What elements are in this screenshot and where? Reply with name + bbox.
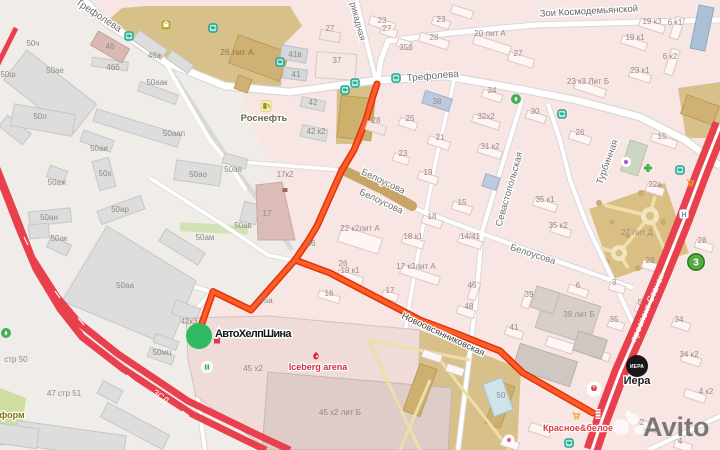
- svg-text:6 к2: 6 к2: [663, 52, 678, 61]
- svg-text:50л: 50л: [33, 112, 47, 121]
- svg-text:34 к2: 34 к2: [679, 350, 699, 359]
- svg-text:28: 28: [430, 33, 439, 42]
- svg-text:47 стр 51: 47 стр 51: [47, 389, 82, 398]
- svg-text:36: 36: [307, 239, 316, 248]
- svg-text:22 к2лит А: 22 к2лит А: [340, 224, 380, 233]
- svg-text:50аак: 50аак: [146, 78, 168, 87]
- svg-text:48: 48: [465, 302, 474, 311]
- svg-text:5: 5: [638, 298, 643, 307]
- svg-text:21: 21: [436, 133, 445, 142]
- svg-text:Н: Н: [681, 212, 686, 219]
- svg-text:50ав: 50ав: [234, 221, 252, 230]
- svg-text:3: 3: [612, 278, 617, 287]
- svg-text:39: 39: [525, 290, 534, 299]
- svg-text:50ая: 50ая: [224, 165, 242, 174]
- svg-text:23 к3 Лит Б: 23 к3 Лит Б: [567, 77, 609, 86]
- svg-text:42 к2: 42 к2: [306, 127, 326, 136]
- svg-text:17к2: 17к2: [277, 170, 294, 179]
- svg-text:45 х2: 45 х2: [243, 364, 263, 373]
- svg-text:27: 27: [514, 49, 523, 58]
- svg-text:27 лит Д: 27 лит Д: [621, 228, 653, 237]
- svg-text:50ш: 50ш: [0, 70, 15, 79]
- svg-text:18: 18: [428, 212, 437, 221]
- svg-text:26 лит А: 26 лит А: [220, 47, 254, 57]
- svg-text:46: 46: [468, 281, 477, 290]
- svg-text:Iceberg arena: Iceberg arena: [289, 362, 349, 372]
- svg-text:45 х2 лит Б: 45 х2 лит Б: [319, 408, 361, 417]
- svg-text:46б: 46б: [106, 63, 120, 72]
- svg-text:46: 46: [106, 42, 115, 51]
- svg-text:32х2: 32х2: [477, 112, 495, 121]
- svg-text:50аа: 50аа: [116, 281, 134, 290]
- svg-text:16: 16: [325, 289, 334, 298]
- svg-text:Avito: Avito: [643, 412, 710, 442]
- svg-text:АвтоХелпШина: АвтоХелпШина: [215, 328, 292, 340]
- svg-text:19 к1: 19 к1: [625, 33, 645, 42]
- svg-text:35 к1: 35 к1: [535, 195, 555, 204]
- svg-text:50ч: 50ч: [26, 39, 39, 48]
- svg-text:31 к2: 31 к2: [480, 142, 500, 151]
- svg-text:27: 27: [326, 24, 335, 33]
- svg-text:50ак: 50ак: [51, 234, 68, 243]
- svg-text:35б: 35б: [399, 43, 413, 52]
- svg-text:41в: 41в: [288, 50, 301, 59]
- svg-text:17: 17: [386, 286, 395, 295]
- svg-text:14/41: 14/41: [460, 232, 481, 241]
- svg-text:6 к1: 6 к1: [668, 18, 683, 27]
- svg-text:46ж: 46ж: [148, 51, 163, 60]
- svg-text:форм: форм: [0, 410, 25, 420]
- svg-text:25: 25: [406, 114, 415, 123]
- svg-text:15: 15: [658, 132, 667, 141]
- svg-text:3: 3: [693, 258, 699, 269]
- svg-text:50х: 50х: [99, 169, 112, 178]
- svg-text:41: 41: [292, 70, 301, 79]
- svg-text:50ам: 50ам: [196, 233, 215, 242]
- svg-text:41: 41: [510, 323, 519, 332]
- svg-text:34: 34: [488, 86, 497, 95]
- svg-text:28: 28: [698, 236, 707, 245]
- svg-text:27: 27: [383, 24, 392, 33]
- svg-text:23: 23: [399, 149, 408, 158]
- svg-text:50аж: 50аж: [48, 178, 67, 187]
- svg-text:19: 19: [424, 168, 433, 177]
- svg-text:28: 28: [372, 116, 381, 125]
- svg-text:23: 23: [437, 15, 446, 24]
- svg-text:4 к2: 4 к2: [699, 387, 714, 396]
- svg-text:19 к3: 19 к3: [642, 17, 662, 26]
- svg-text:50мц: 50мц: [153, 348, 172, 357]
- svg-text:50ае: 50ае: [46, 66, 64, 75]
- svg-text:35: 35: [610, 315, 619, 324]
- svg-text:39 лит Б: 39 лит Б: [563, 310, 594, 319]
- svg-text:Красное&белое: Красное&белое: [543, 423, 613, 433]
- svg-text:50ан: 50ан: [40, 213, 58, 222]
- svg-text:50ао: 50ао: [189, 170, 207, 179]
- svg-text:45а: 45а: [259, 296, 273, 305]
- svg-text:37: 37: [333, 56, 342, 65]
- svg-text:26: 26: [339, 259, 348, 268]
- svg-text:20 лит А: 20 лит А: [474, 29, 506, 38]
- svg-text:38: 38: [433, 97, 442, 106]
- svg-text:15: 15: [458, 198, 467, 207]
- svg-text:22а: 22а: [648, 180, 662, 189]
- svg-text:50аи: 50аи: [90, 144, 108, 153]
- svg-text:17: 17: [263, 209, 272, 218]
- svg-text:Роснефть: Роснефть: [241, 113, 288, 124]
- svg-text:17 к3лит А: 17 к3лит А: [396, 262, 436, 271]
- svg-text:18 к1: 18 к1: [403, 232, 423, 241]
- svg-text:ИЕРА: ИЕРА: [630, 364, 644, 370]
- svg-text:29: 29: [646, 256, 655, 265]
- svg-text:стр 50: стр 50: [4, 355, 28, 364]
- svg-text:50: 50: [497, 391, 506, 400]
- svg-text:6: 6: [576, 281, 581, 290]
- svg-text:50ар: 50ар: [111, 205, 129, 214]
- svg-text:26: 26: [576, 128, 585, 137]
- svg-text:42: 42: [309, 98, 318, 107]
- svg-text:34: 34: [675, 315, 684, 324]
- svg-text:50аап: 50аап: [163, 129, 185, 138]
- svg-text:30: 30: [531, 107, 540, 116]
- svg-text:23 к1: 23 к1: [630, 66, 650, 75]
- svg-text:35 к2: 35 к2: [548, 221, 568, 230]
